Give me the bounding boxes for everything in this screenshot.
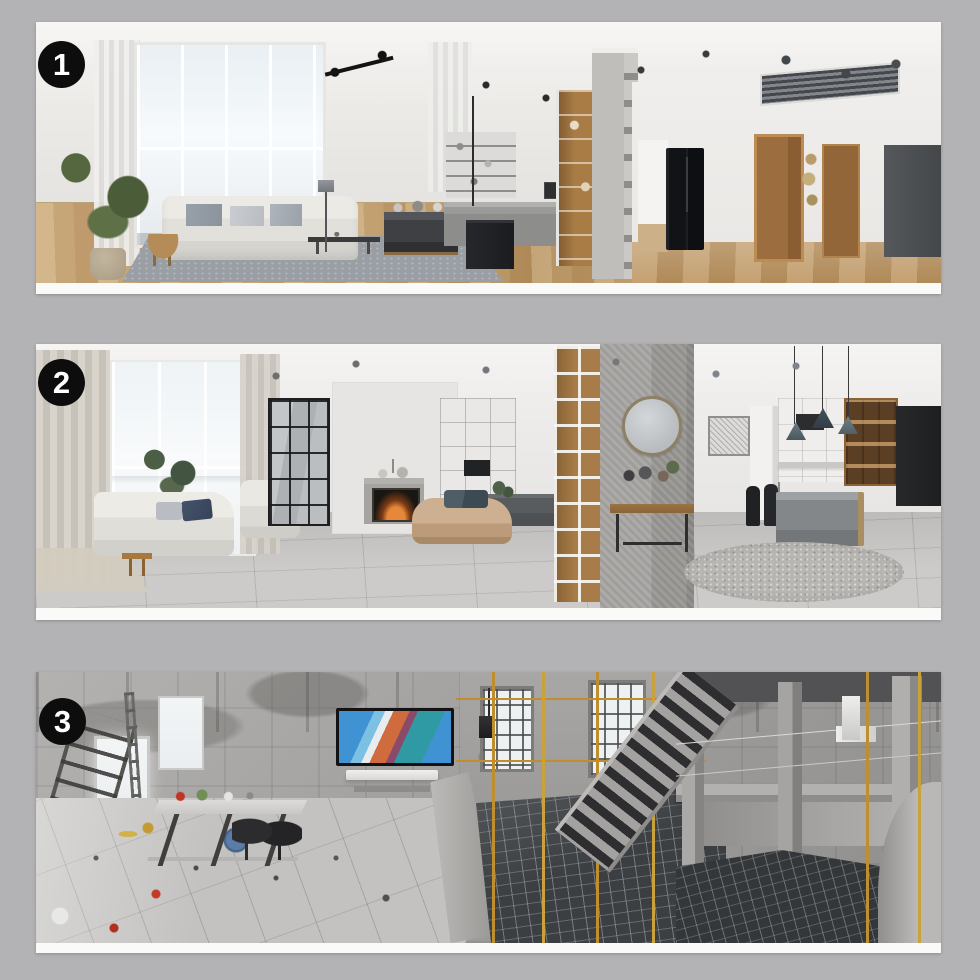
kitchen-island [776,492,864,546]
daybed-pillows [444,490,488,508]
kitchen-shelves [446,132,516,198]
panel-1-photo-furnished-living-room [36,22,941,283]
wall-recess [354,786,430,792]
panel-2-photo-styled-living-room [36,344,941,608]
floor-lamp [316,180,336,252]
yellow-scaffold [856,672,941,943]
pendant-wire [472,96,474,206]
hall-opening [638,140,668,252]
glass-partition [268,398,330,526]
console-decor [620,456,680,484]
microwave-niche [464,460,490,476]
panel-2-number-badge: 2 [38,359,85,406]
photo-panel-3: 3 [36,672,941,953]
wood-stool [122,550,152,576]
refrigerator [666,148,704,250]
tv [336,708,454,766]
soundbar [346,770,438,780]
wall-ornaments [800,152,822,212]
collage-background: 1 [0,0,980,980]
wood-door [822,144,860,258]
gray-pillow [156,502,182,520]
wood-door [754,134,804,262]
sofa-pillows [186,204,306,226]
console-table [610,482,694,552]
round-mirror [622,396,682,456]
plant-foliage [50,142,168,258]
window [158,696,204,770]
round-rug [684,542,904,602]
black-wall-panel [896,406,941,506]
panel-1-number-badge: 1 [38,41,85,88]
ceiling-spotlights [456,36,936,110]
framed-art [708,416,750,456]
panel-3-photo-construction-site [36,672,941,943]
panel-3-number-badge: 3 [39,698,86,745]
mantle-decor [366,456,422,478]
work-table-items [166,788,286,802]
plant-pot [90,248,126,280]
kitchen-island [466,220,514,269]
bar-chair [746,486,760,526]
dark-door [884,145,941,257]
navy-pillow [181,498,213,521]
ceiling-spotlights [236,350,856,390]
photo-panel-2: 2 [36,344,941,620]
chairs [232,812,302,860]
photo-panel-1: 1 [36,22,941,294]
